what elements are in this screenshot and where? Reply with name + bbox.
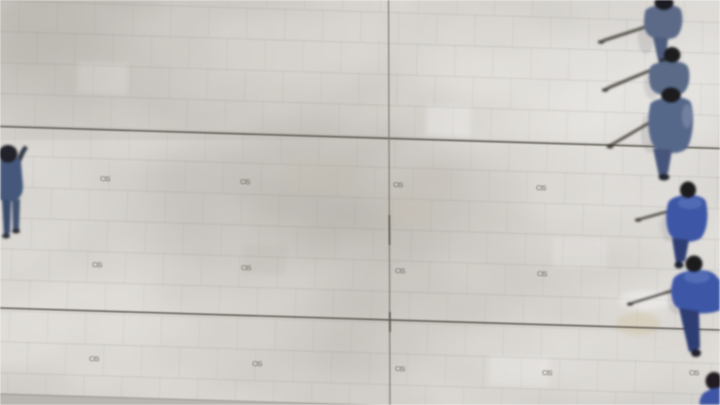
svg-text:CIS: CIS [542, 370, 553, 377]
svg-text:CIS: CIS [89, 356, 100, 363]
svg-text:CIS: CIS [395, 268, 406, 275]
svg-text:CIS: CIS [240, 179, 251, 186]
svg-text:CIS: CIS [395, 366, 406, 373]
svg-text:CIS: CIS [92, 262, 103, 269]
svg-text:CIS: CIS [393, 182, 404, 189]
svg-text:CIS: CIS [100, 176, 111, 183]
svg-text:CIS: CIS [252, 361, 263, 368]
svg-text:CIS: CIS [537, 271, 548, 278]
svg-text:CIS: CIS [536, 185, 547, 192]
svg-text:CIS: CIS [241, 265, 252, 272]
svg-text:CIS: CIS [689, 370, 700, 377]
